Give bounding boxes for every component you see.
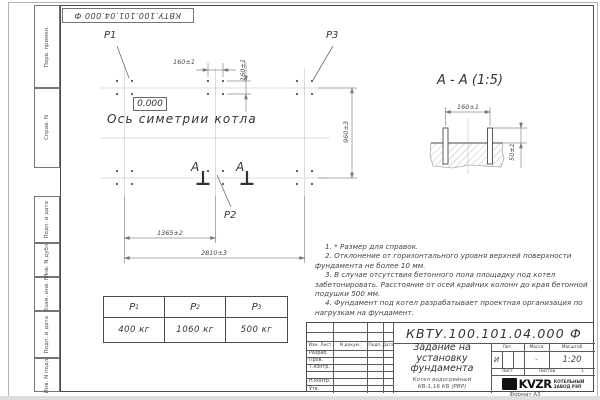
row-tkontr: Т.контр. — [307, 364, 333, 371]
row-prov: Пров. — [307, 357, 333, 364]
dim-plan-height: 960±3 — [342, 117, 350, 147]
dim-center-distance: 1365±2 — [148, 229, 192, 237]
dim-bolt-protrusion: 50±1 — [508, 139, 516, 165]
load-point-label-p3: P3 — [326, 30, 338, 41]
load-table-header-p1: P1 — [104, 297, 165, 318]
mass-header: Масса — [524, 343, 549, 351]
col-data: Дата — [383, 341, 393, 350]
row-nkontr: Н.контр. — [307, 378, 333, 385]
section-cut-marks — [197, 171, 254, 184]
row-razrab: Разраб. — [307, 350, 333, 357]
mass-value: - — [524, 351, 549, 368]
lit-value: И — [491, 351, 502, 368]
drawing-title: Задание на установку фундамента — [393, 343, 491, 375]
dim-section-bolt-spacing: 160±1 — [453, 103, 483, 111]
load-value-p3: 500 кг — [226, 318, 287, 342]
dim-total-length: 2810±3 — [192, 249, 236, 257]
col-n-docum: N докум. — [333, 341, 367, 350]
load-value-p2: 1060 кг — [165, 318, 226, 342]
sheet-bottom-shadow — [0, 396, 600, 400]
anchor-bolt-dots — [116, 80, 313, 185]
col-izm-list: Изм. Лист — [307, 341, 333, 350]
level-mark: 0.000 — [133, 97, 167, 111]
load-table-header-p2: P2 — [165, 297, 226, 318]
col-podp: Подп. — [367, 341, 383, 350]
symmetry-axis-label: Ось симетрии котла — [107, 112, 257, 126]
company-name: КОТЕЛЬНЫЙ ЗАВОД РЭП — [554, 379, 585, 390]
section-letter-right: А — [236, 160, 244, 174]
sheet-label: Лист — [491, 368, 524, 375]
lit-header: Лит. — [491, 343, 524, 351]
product-name: Котел водогрейный КВ-1,16 КБ (РВР) — [393, 375, 491, 393]
company-logo: KVZR КОТЕЛЬНЫЙ ЗАВОД РЭП — [491, 375, 595, 393]
axis-centerlines — [100, 68, 468, 196]
title-block: Изм. Лист N докум. Подп. Дата Разраб. Пр… — [306, 322, 594, 392]
section-letter-left: А — [191, 160, 199, 174]
drawing-sheet: Перв. примен. Справ. N Подп. и дата Инв.… — [0, 0, 600, 400]
scale-header: Масштаб — [549, 343, 595, 351]
note-4: 4. Фундамент под котел разрабатывает про… — [315, 298, 591, 317]
sheets-label: Листов — [524, 368, 570, 375]
sheets-value: 1 — [570, 368, 595, 375]
dim-bolt-spacing-v: 160±1 — [239, 55, 247, 85]
load-value-p1: 400 кг — [104, 318, 165, 342]
scale-value: 1:20 — [549, 351, 595, 368]
dim-bolt-spacing-h: 160±1 — [166, 58, 202, 66]
technical-notes: 1. * Размер для справок. 2. Отклонение о… — [315, 242, 591, 317]
kvzr-logo-mark — [502, 378, 517, 390]
kvzr-logo-text: KVZR — [519, 377, 552, 391]
load-table: P1 P2 P3 400 кг 1060 кг 500 кг — [103, 296, 288, 343]
note-2: 2. Отклонение от горизонтального уровня … — [315, 251, 591, 270]
load-point-label-p2: P2 — [224, 210, 236, 221]
note-3: 3. В случае отсутствия бетонного пола пл… — [315, 270, 591, 298]
row-utv: Утв. — [307, 385, 333, 393]
doc-number: КВТУ.100.101.04.000 Ф — [393, 323, 595, 343]
load-point-label-p1: P1 — [104, 30, 116, 41]
load-table-header-p3: P3 — [226, 297, 287, 318]
note-1: 1. * Размер для справок. — [315, 242, 591, 251]
section-view-title: А - А (1:5) — [424, 73, 516, 88]
